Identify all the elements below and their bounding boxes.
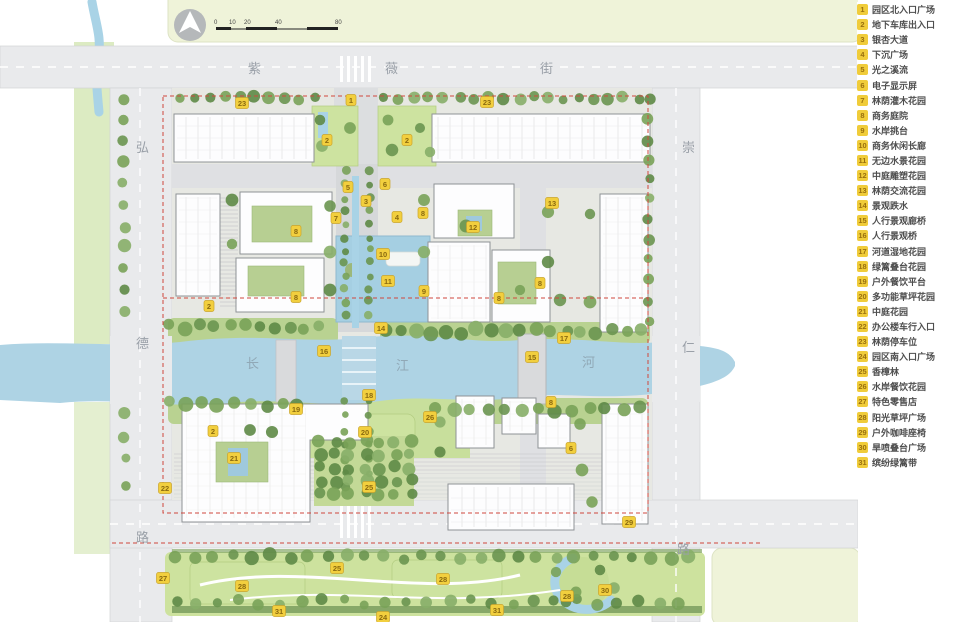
legend-item: 8商务庭院: [857, 108, 960, 123]
legend-item: 13林荫交流花园: [857, 183, 960, 198]
legend-label: 中庭雕塑花园: [872, 169, 926, 182]
street-name-char: 德: [136, 336, 149, 351]
legend-number-badge: 18: [857, 261, 868, 272]
legend-label: 缤纷绿篱带: [872, 456, 917, 469]
map-marker-number: 15: [528, 353, 536, 362]
building: [432, 114, 650, 162]
map-marker-number: 28: [238, 582, 246, 591]
legend-item: 28阳光草坪广场: [857, 410, 960, 425]
legend-label: 银杏大道: [872, 33, 908, 46]
map-marker-number: 8: [294, 227, 298, 236]
legend-item: 12中庭雕塑花园: [857, 168, 960, 183]
legend-item: 15人行景观廊桥: [857, 213, 960, 228]
north-arrow-icon: [174, 9, 206, 41]
legend-number-badge: 5: [857, 64, 868, 75]
map-marker-number: 29: [625, 518, 633, 527]
legend-number-badge: 8: [857, 110, 868, 121]
legend-label: 水岸餐饮花园: [872, 380, 926, 393]
legend-number-badge: 21: [857, 306, 868, 317]
map-marker-number: 26: [426, 413, 434, 422]
legend-item: 3银杏大道: [857, 32, 960, 47]
map-marker-number: 5: [346, 183, 350, 192]
legend-number-badge: 14: [857, 200, 868, 211]
map-marker-number: 9: [422, 287, 426, 296]
map-marker-number: 27: [159, 574, 167, 583]
legend-item: 19户外餐饮平台: [857, 274, 960, 289]
street-name-char: 薇: [385, 61, 398, 76]
street-name-char: 路: [136, 530, 149, 545]
legend-label: 人行景观桥: [872, 229, 917, 242]
map-marker-number: 25: [365, 483, 373, 492]
legend-item: 7林荫灌木花园: [857, 93, 960, 108]
map-marker-number: 8: [294, 293, 298, 302]
map-marker-number: 7: [334, 214, 338, 223]
legend-item: 1园区北入口广场: [857, 2, 960, 17]
legend-label: 园区北入口广场: [872, 3, 935, 16]
map-marker-number: 14: [377, 324, 386, 333]
building: [448, 484, 574, 530]
street-name-char: 路: [677, 542, 690, 557]
legend-label: 水岸挑台: [872, 124, 908, 137]
legend-label: 商务庭院: [872, 109, 908, 122]
map-marker-number: 8: [549, 398, 553, 407]
legend-item: 17河道湿地花园: [857, 244, 960, 259]
legend-label: 阳光草坪广场: [872, 411, 926, 424]
map-marker-number: 2: [211, 427, 215, 436]
map-marker-number: 2: [405, 136, 409, 145]
legend-item: 18绿篱叠台花园: [857, 259, 960, 274]
legend-item: 30旱喷叠台广场: [857, 440, 960, 455]
map-marker-number: 22: [161, 484, 169, 493]
map-marker-number: 28: [563, 592, 571, 601]
building: [236, 258, 324, 312]
legend-number-badge: 3: [857, 34, 868, 45]
legend-item: 5光之溪流: [857, 62, 960, 77]
map-marker-number: 18: [365, 391, 373, 400]
street-name-char: 长: [246, 356, 259, 371]
building: [174, 114, 314, 162]
legend-label: 户外餐饮平台: [872, 275, 926, 288]
map-marker-number: 20: [361, 428, 369, 437]
legend-label: 林荫灌木花园: [872, 94, 926, 107]
scale-tick: 20: [244, 20, 251, 26]
legend-label: 下沉广场: [872, 48, 908, 61]
legend-number-badge: 15: [857, 215, 868, 226]
legend-panel: 1园区北入口广场2地下车库出入口3银杏大道4下沉广场5光之溪流6电子显示屏7林荫…: [857, 2, 960, 470]
legend-item: 23林荫停车位: [857, 334, 960, 349]
legend-number-badge: 2: [857, 19, 868, 30]
legend-label: 办公楼车行入口: [872, 320, 935, 333]
map-marker-number: 21: [230, 454, 238, 463]
building: [538, 414, 570, 448]
map-marker-number: 11: [384, 277, 392, 286]
legend-label: 人行景观廊桥: [872, 214, 926, 227]
legend-number-badge: 1: [857, 4, 868, 15]
legend-label: 旱喷叠台广场: [872, 441, 926, 454]
scale-tick: 80: [335, 20, 342, 26]
legend-number-badge: 6: [857, 80, 868, 91]
legend-number-badge: 9: [857, 125, 868, 136]
legend-label: 地下车库出入口: [872, 18, 935, 31]
legend-number-badge: 27: [857, 396, 868, 407]
street-name-char: 河: [582, 355, 595, 370]
legend-item: 11无边水景花园: [857, 153, 960, 168]
legend-number-badge: 19: [857, 276, 868, 287]
legend-item: 22办公楼车行入口: [857, 319, 960, 334]
scale-tick: 10: [229, 20, 236, 26]
legend-label: 多功能草坪花园: [872, 290, 935, 303]
building: [176, 194, 220, 296]
street-name-char: 紫: [248, 61, 261, 76]
legend-number-badge: 20: [857, 291, 868, 302]
street-name-char: 仁: [682, 340, 695, 355]
legend-number-badge: 23: [857, 336, 868, 347]
legend-label: 绿篱叠台花园: [872, 260, 926, 273]
legend-item: 27特色零售店: [857, 394, 960, 409]
map-marker-number: 13: [548, 199, 556, 208]
legend-item: 2地下车库出入口: [857, 17, 960, 32]
legend-item: 26水岸餐饮花园: [857, 379, 960, 394]
legend-item: 6电子显示屏: [857, 77, 960, 92]
map-marker-number: 10: [379, 250, 387, 259]
street-name-char: 江: [396, 358, 409, 373]
legend-label: 商务休闲长廊: [872, 139, 926, 152]
map-marker-number: 8: [497, 294, 501, 303]
map-marker-number: 6: [383, 180, 387, 189]
legend-number-badge: 25: [857, 366, 868, 377]
map-marker-number: 1: [349, 96, 353, 105]
map-marker-number: 12: [469, 223, 477, 232]
legend-label: 中庭花园: [872, 305, 908, 318]
legend-label: 景观跌水: [872, 199, 908, 212]
site-plan-map: 010204080 紫薇街弘德路崇仁路长江河 12323226531384712…: [0, 0, 858, 622]
map-marker-number: 6: [569, 444, 573, 453]
legend-item: 4下沉广场: [857, 47, 960, 62]
street-name-char: 崇: [682, 140, 695, 155]
scale-tick: 40: [275, 20, 282, 26]
legend-item: 16人行景观桥: [857, 228, 960, 243]
legend-label: 林荫停车位: [872, 335, 917, 348]
map-marker-number: 19: [292, 405, 300, 414]
map-marker-number: 16: [320, 347, 328, 356]
site-plan-canvas: 010204080 紫薇街弘德路崇仁路长江河 12323226531384712…: [0, 0, 858, 622]
legend-number-badge: 17: [857, 246, 868, 257]
legend-number-badge: 31: [857, 457, 868, 468]
legend-label: 光之溪流: [872, 63, 908, 76]
legend-number-badge: 11: [857, 155, 868, 166]
map-marker-number: 28: [439, 575, 447, 584]
legend-number-badge: 4: [857, 49, 868, 60]
legend-item: 14景观跌水: [857, 198, 960, 213]
legend-item: 10商务休闲长廊: [857, 138, 960, 153]
street-name-char: 街: [540, 61, 553, 76]
legend-label: 河道湿地花园: [872, 245, 926, 258]
legend-item: 31缤纷绿篱带: [857, 455, 960, 470]
map-marker-number: 23: [483, 98, 491, 107]
legend-item: 25香樟林: [857, 364, 960, 379]
legend-item: 29户外咖啡座椅: [857, 425, 960, 440]
map-marker-number: 8: [538, 279, 542, 288]
legend-number-badge: 24: [857, 351, 868, 362]
legend-number-badge: 13: [857, 185, 868, 196]
legend-label: 电子显示屏: [872, 79, 917, 92]
building: [240, 192, 332, 254]
legend-label: 特色零售店: [872, 395, 917, 408]
legend-label: 香樟林: [872, 365, 899, 378]
legend-item: 20多功能草坪花园: [857, 289, 960, 304]
legend-label: 户外咖啡座椅: [872, 426, 926, 439]
legend-label: 园区南入口广场: [872, 350, 935, 363]
street-name-char: 弘: [136, 140, 149, 155]
legend-number-badge: 22: [857, 321, 868, 332]
map-marker-number: 24: [379, 613, 388, 622]
map-marker-number: 2: [325, 136, 329, 145]
map-marker-number: 31: [275, 607, 283, 616]
legend-item: 21中庭花园: [857, 304, 960, 319]
legend-number-badge: 16: [857, 230, 868, 241]
legend-number-badge: 29: [857, 427, 868, 438]
map-marker-number: 30: [601, 586, 609, 595]
building: [602, 404, 648, 524]
legend-label: 无边水景花园: [872, 154, 926, 167]
building: [428, 242, 490, 322]
map-marker-number: 8: [421, 209, 425, 218]
map-marker-number: 3: [364, 197, 368, 206]
map-marker-number: 17: [560, 334, 568, 343]
building: [600, 194, 648, 332]
legend-label: 林荫交流花园: [872, 184, 926, 197]
legend-item: 24园区南入口广场: [857, 349, 960, 364]
map-marker-number: 25: [333, 564, 341, 573]
legend-number-badge: 26: [857, 381, 868, 392]
legend-rows: 1园区北入口广场2地下车库出入口3银杏大道4下沉广场5光之溪流6电子显示屏7林荫…: [857, 2, 960, 470]
map-marker-number: 23: [238, 99, 246, 108]
map-marker-number: 2: [207, 302, 211, 311]
legend-number-badge: 30: [857, 442, 868, 453]
legend-number-badge: 28: [857, 412, 868, 423]
legend-item: 9水岸挑台: [857, 123, 960, 138]
legend-number-badge: 7: [857, 95, 868, 106]
legend-number-badge: 12: [857, 170, 868, 181]
map-marker-number: 31: [493, 606, 501, 615]
legend-number-badge: 10: [857, 140, 868, 151]
